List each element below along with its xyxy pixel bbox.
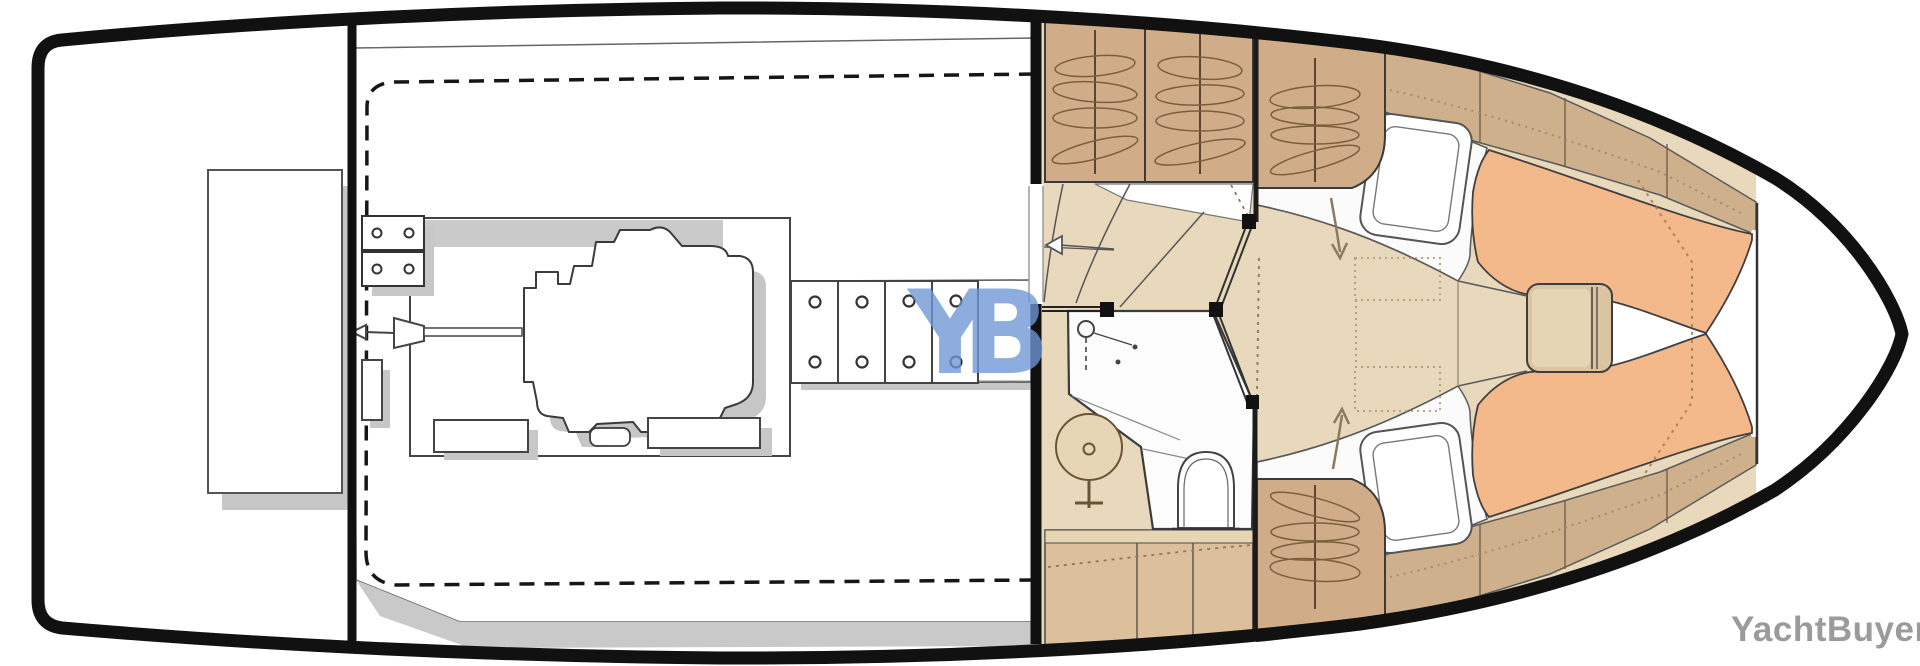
transom-bench: [208, 170, 342, 493]
through-hull-fitting: [362, 360, 382, 420]
aft-cabinets: [1045, 530, 1253, 646]
cabinet-counter-edge: [1045, 530, 1253, 543]
bolt-icon: [857, 297, 868, 308]
bolt-icon: [405, 265, 414, 274]
bracket-plate-lower: [362, 252, 424, 286]
bolt-icon: [857, 357, 868, 368]
cabinet-run: [1045, 530, 1253, 646]
floorplan-drawing: YB YachtBuyer: [0, 0, 1920, 666]
hanging-locker-3: [1257, 33, 1385, 188]
swim-platform: [208, 170, 356, 510]
toilet-icon: [1172, 452, 1240, 529]
engine-foot: [590, 428, 630, 446]
hanging-locker-2: [1145, 26, 1253, 182]
equipment-box: [648, 418, 760, 448]
yacht-floorplan: YB YachtBuyer: [0, 0, 1920, 666]
yachtbuyer-watermark: YachtBuyer: [1731, 610, 1920, 649]
bolt-icon: [373, 265, 382, 274]
equipment-box: [434, 420, 528, 452]
companionway-opening: [1029, 184, 1043, 304]
bracket-plate-upper: [362, 216, 424, 250]
bolt-icon: [810, 357, 821, 368]
vberth-table: [1527, 284, 1612, 372]
hanging-locker-1: [1045, 22, 1145, 182]
bolt-icon: [373, 229, 382, 238]
bolt-icon: [810, 297, 821, 308]
bolt-icon: [405, 229, 414, 238]
shaft-rod: [424, 328, 522, 336]
